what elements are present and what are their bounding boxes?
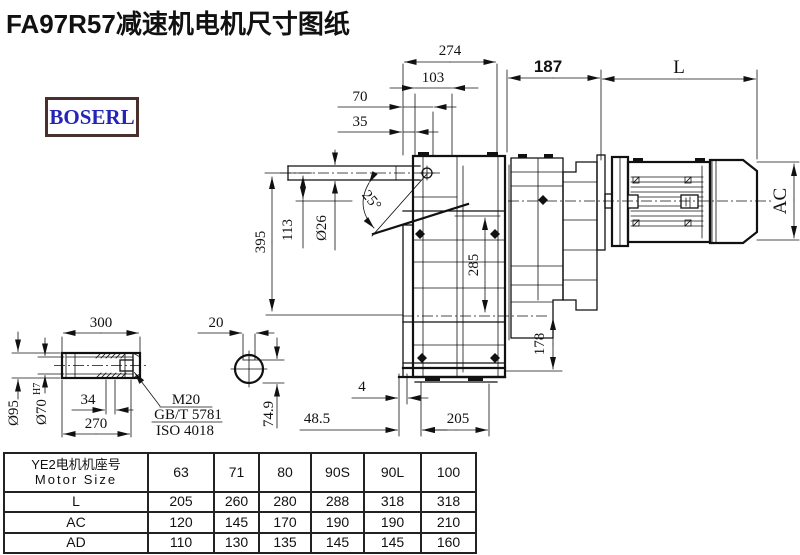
table-header-en: Motor Size: [35, 473, 117, 487]
table-cell: 280: [260, 493, 312, 513]
dim-35: 35: [353, 114, 368, 130]
dim-dia95: Ø95: [6, 400, 22, 426]
dim-205: 205: [447, 411, 470, 427]
dim-angle-25: 25°: [358, 187, 384, 213]
column-header: 71: [215, 454, 260, 493]
dim-dia26: Ø26: [314, 215, 330, 241]
thread-callout: M20: [172, 392, 200, 408]
table-cell: 145: [365, 534, 422, 554]
brand-logo: BOSERL: [45, 97, 139, 137]
dim-187: 187: [534, 57, 562, 76]
front-view-motor: [508, 154, 772, 340]
dim-395: 395: [253, 231, 269, 254]
dim-20: 20: [209, 315, 224, 331]
dim-dia70-tolerance: H7: [32, 383, 43, 395]
column-header: 90S: [312, 454, 365, 493]
dim-AC: AC: [770, 188, 791, 214]
motor-size-table: YE2电机机座号 Motor Size 63 71 80 90S 90L 100…: [3, 452, 477, 554]
table-cell: 170: [260, 513, 312, 534]
column-header: 80: [260, 454, 312, 493]
dim-285: 285: [466, 254, 482, 277]
standard-gbt: GB/T 5781: [154, 407, 222, 423]
dimensions-top: 274 103 70 35 187 L: [338, 43, 757, 160]
table-cell: 210: [422, 513, 477, 534]
hollow-shaft-detail: 300 Ø95 Ø70 H7 34 270 M20 GB/T 5781 ISO …: [6, 315, 222, 439]
dim-113: 113: [280, 219, 296, 241]
dim-103: 103: [422, 70, 445, 86]
table-cell: 145: [312, 534, 365, 554]
dim-dia70: Ø70: [34, 399, 50, 425]
row-label-AD: AD: [5, 534, 149, 554]
table-cell: 260: [215, 493, 260, 513]
column-header: 63: [149, 454, 215, 493]
table-header-cn: YE2电机机座号: [31, 458, 121, 472]
dim-178: 178: [532, 333, 548, 356]
standard-iso: ISO 4018: [156, 423, 214, 439]
table-cell: 160: [422, 534, 477, 554]
table-cell: 205: [149, 493, 215, 513]
table-cell: 318: [422, 493, 477, 513]
dim-48-5: 48.5: [304, 411, 330, 427]
dim-70: 70: [353, 89, 368, 105]
dim-274: 274: [439, 43, 462, 59]
drawing-sheet: 274 103 70 35 187 L 395 113 Ø26 25°: [0, 0, 800, 555]
dim-300: 300: [90, 315, 113, 331]
table-cell: 190: [365, 513, 422, 534]
table-cell: 318: [365, 493, 422, 513]
table-cell: 120: [149, 513, 215, 534]
dimensions-bottom: 4 48.5 205: [300, 374, 489, 436]
table-cell: 135: [260, 534, 312, 554]
front-view-gearbox: [266, 152, 548, 382]
dim-74-9: 74.9: [261, 401, 277, 427]
dim-270: 270: [85, 416, 108, 432]
brand-logo-text: BOSERL: [49, 105, 134, 130]
row-label-L: L: [5, 493, 149, 513]
row-label-AC: AC: [5, 513, 149, 534]
table-cell: 288: [312, 493, 365, 513]
table-cell: 145: [215, 513, 260, 534]
dim-34: 34: [81, 392, 97, 408]
table-cell: 110: [149, 534, 215, 554]
page-title: FA97R57减速机电机尺寸图纸: [6, 4, 350, 41]
dim-L: L: [673, 57, 685, 78]
table-cell: 190: [312, 513, 365, 534]
table-header-motor-size: YE2电机机座号 Motor Size: [5, 454, 149, 493]
column-header: 100: [422, 454, 477, 493]
dimensions-left: 395 113 Ø26 25°: [253, 150, 384, 311]
dim-4: 4: [358, 379, 366, 395]
column-header: 90L: [365, 454, 422, 493]
table-cell: 130: [215, 534, 260, 554]
